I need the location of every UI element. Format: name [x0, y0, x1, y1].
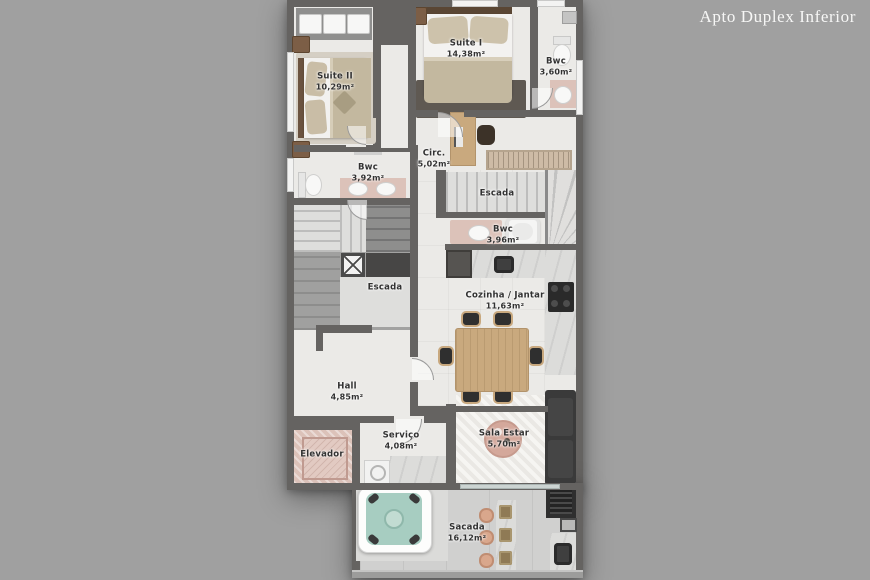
room-label-sala: Sala Estar5,70m² [479, 429, 529, 450]
stairs-left-lower-slab [294, 252, 340, 330]
servico-counter [390, 456, 446, 483]
wall [530, 110, 576, 117]
wall [294, 416, 326, 423]
kitchen-sink [494, 256, 514, 273]
bwc2-sink [348, 182, 368, 196]
room-label-escada-esq: Escada [368, 283, 403, 294]
circ-chair [477, 125, 495, 145]
suite1-blanket [424, 57, 512, 103]
room-label-suite1: Suite I14,38m² [447, 39, 486, 60]
dining-table [455, 328, 529, 392]
window [537, 0, 565, 7]
wall [530, 7, 538, 87]
kitchen-counter-right [545, 250, 576, 375]
kitchen-cabinet-dark [446, 250, 472, 278]
window [287, 52, 294, 132]
wall [408, 7, 416, 112]
bar-stool [479, 508, 494, 523]
wall [366, 145, 381, 152]
dining-chair [438, 346, 454, 366]
wall [410, 382, 418, 416]
wall [373, 7, 381, 118]
bar-tray [499, 505, 512, 519]
grill-sink [554, 543, 572, 565]
dining-chair [461, 311, 481, 327]
sofa-cushion [548, 398, 573, 436]
stair-void-x [341, 253, 365, 277]
wall [294, 198, 346, 205]
floor-hall [294, 330, 418, 416]
suite2-nightstand [292, 36, 310, 53]
page-title: Apto Duplex Inferior [700, 7, 856, 27]
room-label-hall: Hall4,85m² [331, 382, 364, 403]
wall [381, 7, 408, 45]
room-label-servico: Serviço4,08m² [383, 431, 420, 452]
wall [287, 424, 360, 430]
dining-chair [493, 311, 513, 327]
suite2-pillow [305, 99, 328, 135]
wall [446, 404, 456, 483]
floorplan-canvas: Suite II10,29m² Suite I14,38m² Bwc3,60m²… [0, 0, 870, 580]
suite1-bed-headboard [424, 7, 512, 14]
room-label-cozinha: Cozinha / Jantar11,63m² [466, 291, 545, 312]
room-label-sacada: Sacada16,12m² [448, 523, 487, 544]
bar-tray [499, 551, 512, 565]
stairs-left-flight-a [294, 205, 340, 252]
grill-grate [550, 490, 572, 514]
bwc2-towel-rail [354, 152, 382, 155]
dining-chair [528, 346, 544, 366]
room-label-circ: Circ.5,02m² [418, 149, 451, 170]
suite2-wardrobe-door [323, 14, 346, 34]
glass-door-track [460, 484, 560, 489]
wall [316, 325, 372, 333]
balcony-rail [352, 570, 583, 578]
suite2-wardrobe-door [347, 14, 370, 34]
wall [464, 110, 530, 117]
wall [352, 424, 360, 490]
wall [410, 145, 418, 357]
bwc1-sink [554, 86, 572, 104]
cooktop-burner [563, 285, 570, 292]
bwc1-shower-drain [562, 11, 577, 24]
wall [316, 333, 323, 351]
bar-stool [479, 553, 494, 568]
window [287, 158, 294, 192]
window [452, 0, 498, 7]
sofa-cushion [548, 440, 573, 478]
cooktop-burner [551, 285, 558, 292]
room-label-bwc2: Bwc3,92m² [352, 163, 385, 184]
wall [360, 416, 394, 423]
wall [436, 170, 446, 218]
cooktop-burner [551, 300, 558, 307]
room-label-bwc3: Bwc3,96m² [487, 225, 520, 246]
wall [416, 110, 438, 117]
window [576, 60, 583, 115]
washer-drum [370, 465, 386, 481]
wall [287, 483, 360, 490]
bwc2-sink [376, 182, 396, 196]
room-label-suite2: Suite II10,29m² [316, 72, 355, 93]
bwc2-toilet-bowl [305, 174, 322, 196]
wall [436, 212, 545, 218]
sacada-drain-x [560, 518, 577, 532]
bar-tray [499, 528, 512, 542]
wall [294, 145, 346, 152]
circ-wardrobe [486, 150, 572, 170]
room-label-bwc1: Bwc3,60m² [540, 57, 573, 78]
room-label-elevador: Elevador [300, 450, 343, 461]
room-label-escada-sup: Escada [480, 189, 515, 200]
suite2-wardrobe-door [299, 14, 322, 34]
tub-center [384, 509, 404, 529]
wall [453, 406, 548, 412]
floor-nook [381, 45, 408, 148]
cooktop-burner [563, 300, 570, 307]
